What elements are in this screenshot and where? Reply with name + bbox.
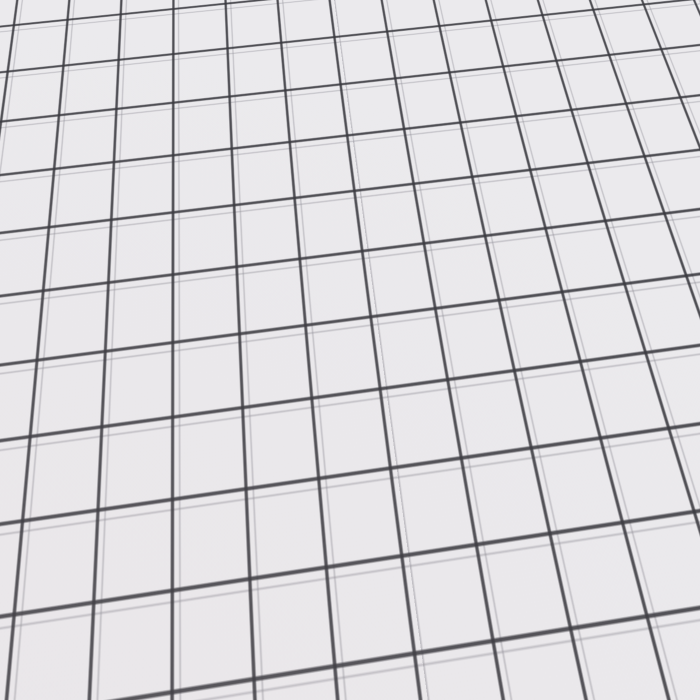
photo-underfloor-heating: REHAU REHAU REHAU REHAU REHAU REHAU REHA… [0, 0, 700, 700]
kermi-logo [99, 287, 157, 345]
kermi-logo-glyph [99, 287, 157, 345]
